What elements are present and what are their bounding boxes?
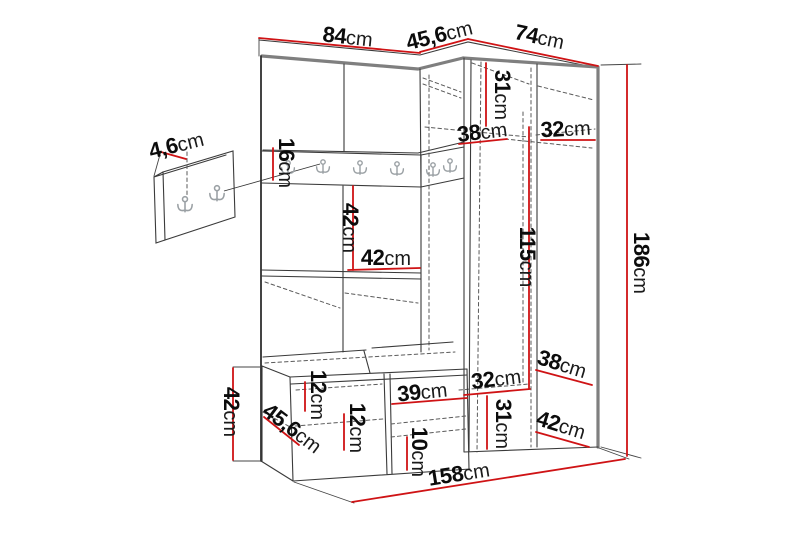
hook-leader-line	[224, 164, 320, 191]
coat-hook-icon	[391, 162, 404, 175]
dim-label-total-width: 158cm	[426, 456, 491, 490]
diagram-canvas: 84cm 45,6cm 74cm 4,6cm 16cm 31cm 38cm 32…	[0, 0, 800, 533]
dim-label-bench-door-width: 39cm	[396, 376, 448, 406]
dim-label-upper-shelf-left: 38cm	[456, 116, 509, 147]
dim-label-lower-inner-height: 31cm	[491, 399, 516, 449]
dim-label-niche-width: 42cm	[361, 245, 411, 270]
dim-label-hanging-height: 115cm	[515, 227, 540, 288]
dim-label-top-width-right: 74cm	[512, 19, 566, 54]
dimension-labels: 84cm 45,6cm 74cm 4,6cm 16cm 31cm 38cm 32…	[146, 14, 654, 490]
wall-hook-panel	[154, 151, 235, 243]
dim-label-bench-top-height: 12cm	[306, 370, 331, 420]
dim-label-bench-inner-height: 12cm	[345, 403, 370, 453]
dim-label-lower-shelf-left: 32cm	[470, 363, 523, 394]
furniture-dimension-diagram: 84cm 45,6cm 74cm 4,6cm 16cm 31cm 38cm 32…	[0, 0, 800, 533]
dim-label-rail-height: 16cm	[274, 138, 299, 188]
panel-hook-icon	[178, 197, 192, 212]
coat-hook-icon	[354, 161, 367, 174]
dim-label-upper-inner-height: 31cm	[490, 70, 515, 120]
dim-label-total-height: 186cm	[629, 232, 654, 294]
dim-label-niche-height: 42cm	[338, 203, 363, 253]
coat-hook-icon	[444, 159, 457, 172]
panel-hook-icon	[210, 186, 224, 201]
coat-hook-icon	[317, 160, 330, 173]
dim-label-bench-height: 42cm	[219, 387, 244, 437]
dim-label-top-width-corner: 45,6cm	[403, 14, 475, 55]
dim-label-upper-shelf-right: 32cm	[540, 115, 591, 143]
dim-label-panel-depth: 4,6cm	[146, 126, 206, 164]
dim-label-top-width-left: 84cm	[322, 21, 374, 51]
